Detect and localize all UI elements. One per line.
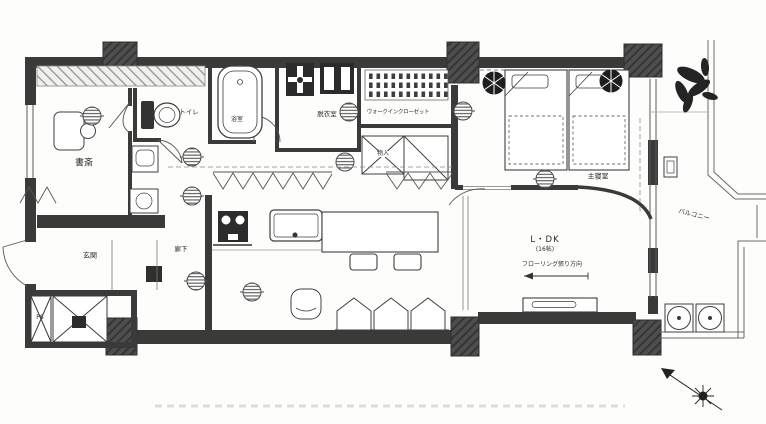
refrigerator-space bbox=[404, 136, 448, 180]
label-master-bedroom: 主寝室 bbox=[588, 174, 609, 181]
stove bbox=[213, 211, 252, 245]
label-storage: 物入 bbox=[376, 151, 390, 157]
toilet-fixture bbox=[141, 101, 180, 129]
label-entrance: 玄関 bbox=[83, 253, 97, 260]
label-ldk: L・DK bbox=[530, 236, 559, 245]
sofa bbox=[335, 298, 449, 330]
label-hallway: 廊下 bbox=[175, 246, 188, 253]
armchair bbox=[291, 289, 321, 319]
hall-cabinets bbox=[130, 146, 158, 213]
dining-set bbox=[322, 212, 438, 270]
sliding-partition bbox=[463, 187, 511, 311]
label-ldk-size: (16帖) bbox=[536, 247, 554, 253]
flooring-direction-arrow bbox=[524, 273, 588, 280]
entry-step-lines bbox=[112, 240, 157, 290]
sawtooth-cabinet-lines bbox=[20, 172, 452, 203]
washbasin bbox=[320, 63, 354, 94]
compass-rose bbox=[661, 368, 722, 410]
label-pipe-space: PS bbox=[36, 315, 43, 321]
floorplan-drawing bbox=[0, 0, 766, 424]
label-walk-in-closet: ウォークインクローゼット bbox=[367, 110, 429, 116]
label-washroom: 脱衣室 bbox=[317, 111, 337, 118]
tv-board bbox=[523, 298, 597, 312]
label-study: 書斎 bbox=[75, 160, 93, 169]
label-bath: 浴室 bbox=[231, 117, 243, 123]
evacuation-hatch bbox=[664, 157, 677, 177]
floorplan-canvas: 書斎 トイレ 浴室 脱衣室 ウォークインクローゼット 物入 廊下 玄関 PS L… bbox=[0, 0, 766, 424]
ceiling-hatch-band bbox=[37, 66, 205, 86]
wic-shelf-grid bbox=[365, 70, 448, 100]
balcony-planters bbox=[665, 304, 724, 332]
kitchen-sink-island bbox=[270, 210, 322, 241]
washing-machine bbox=[286, 63, 314, 96]
label-toilet: トイレ bbox=[179, 109, 199, 116]
shoe-cabinet bbox=[146, 266, 162, 282]
balcony-plant bbox=[672, 58, 718, 114]
label-flooring-note: フローリング張り方向 bbox=[522, 262, 582, 268]
bathtub bbox=[218, 66, 262, 138]
